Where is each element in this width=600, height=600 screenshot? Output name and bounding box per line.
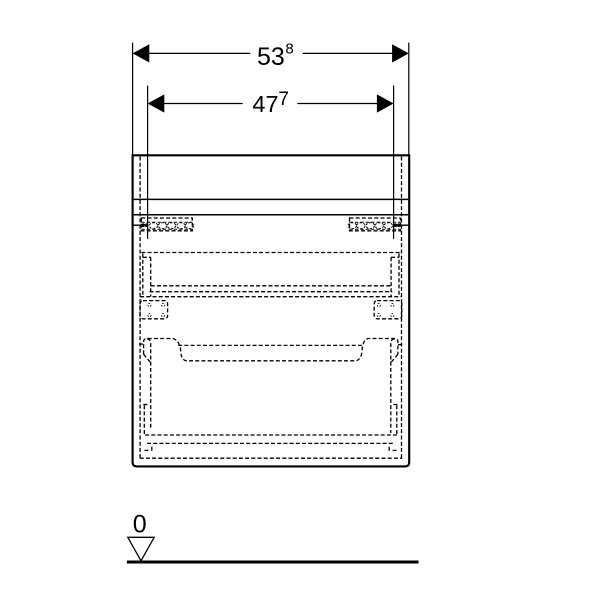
- svg-text:53: 53: [257, 43, 285, 71]
- svg-text:47: 47: [252, 91, 278, 117]
- svg-text:7: 7: [278, 89, 289, 110]
- svg-text:0: 0: [133, 510, 147, 538]
- svg-text:8: 8: [285, 41, 293, 58]
